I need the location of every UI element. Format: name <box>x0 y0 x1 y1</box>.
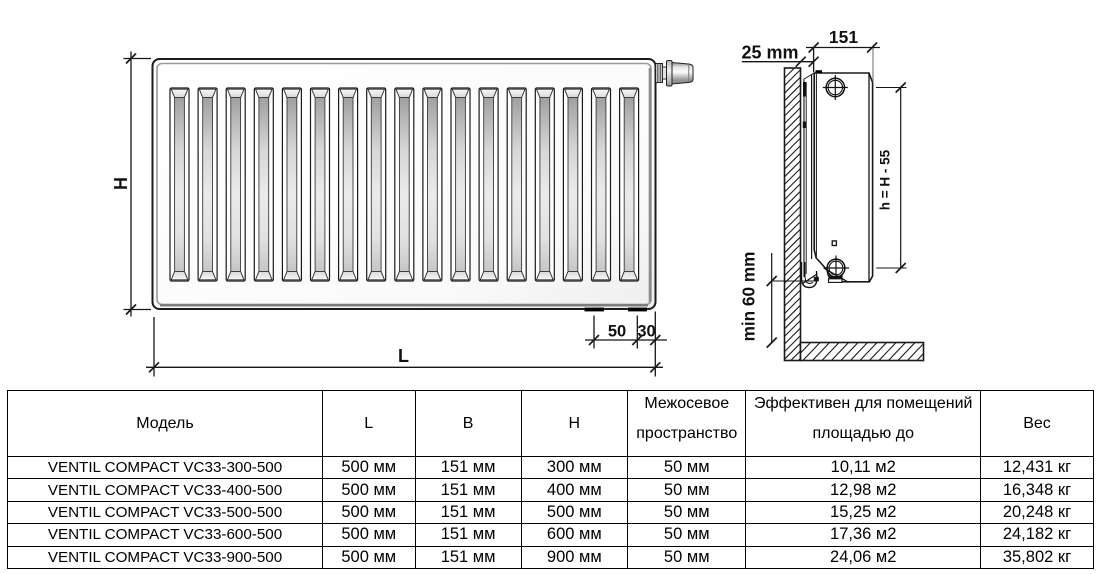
svg-text:h = H - 55: h = H - 55 <box>878 149 893 210</box>
svg-text:H: H <box>111 177 131 190</box>
svg-text:151: 151 <box>829 27 858 47</box>
svg-text:50: 50 <box>608 323 626 341</box>
svg-text:L: L <box>398 346 409 366</box>
svg-text:25 mm: 25 mm <box>742 43 799 63</box>
svg-text:min 60 mm: min 60 mm <box>739 252 759 342</box>
svg-text:30: 30 <box>637 323 655 341</box>
